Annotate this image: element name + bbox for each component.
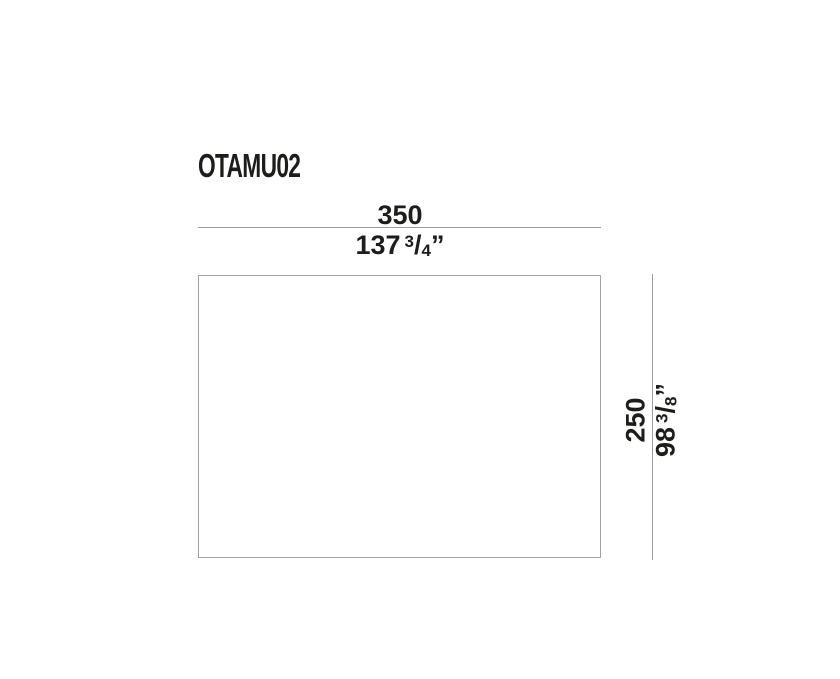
height-metric-label: 250 — [623, 397, 650, 442]
width-imperial-label: 1373/4” — [198, 232, 602, 259]
width-inch-mark: ” — [431, 230, 445, 260]
width-metric-label: 350 — [198, 202, 602, 229]
width-fraction-slash: / — [414, 230, 422, 260]
height-inch-mark: ” — [651, 383, 681, 397]
height-fraction-slash: / — [651, 406, 681, 414]
width-fraction-denominator: 4 — [422, 241, 431, 260]
technical-dimension-drawing: OTAMU02 350 1373/4” 250 983/8” — [0, 0, 840, 679]
product-code-title: OTAMU02 — [198, 149, 300, 182]
height-fraction-denominator: 8 — [662, 397, 681, 406]
height-inches-whole: 98 — [651, 427, 681, 457]
width-inches-whole: 137 — [355, 230, 400, 260]
height-imperial-label: 983/8” — [653, 383, 680, 457]
height-fraction-numerator: 3 — [653, 413, 672, 422]
width-dimension-line — [198, 227, 601, 228]
product-outline-rectangle — [198, 275, 601, 558]
width-fraction-numerator: 3 — [405, 232, 414, 251]
